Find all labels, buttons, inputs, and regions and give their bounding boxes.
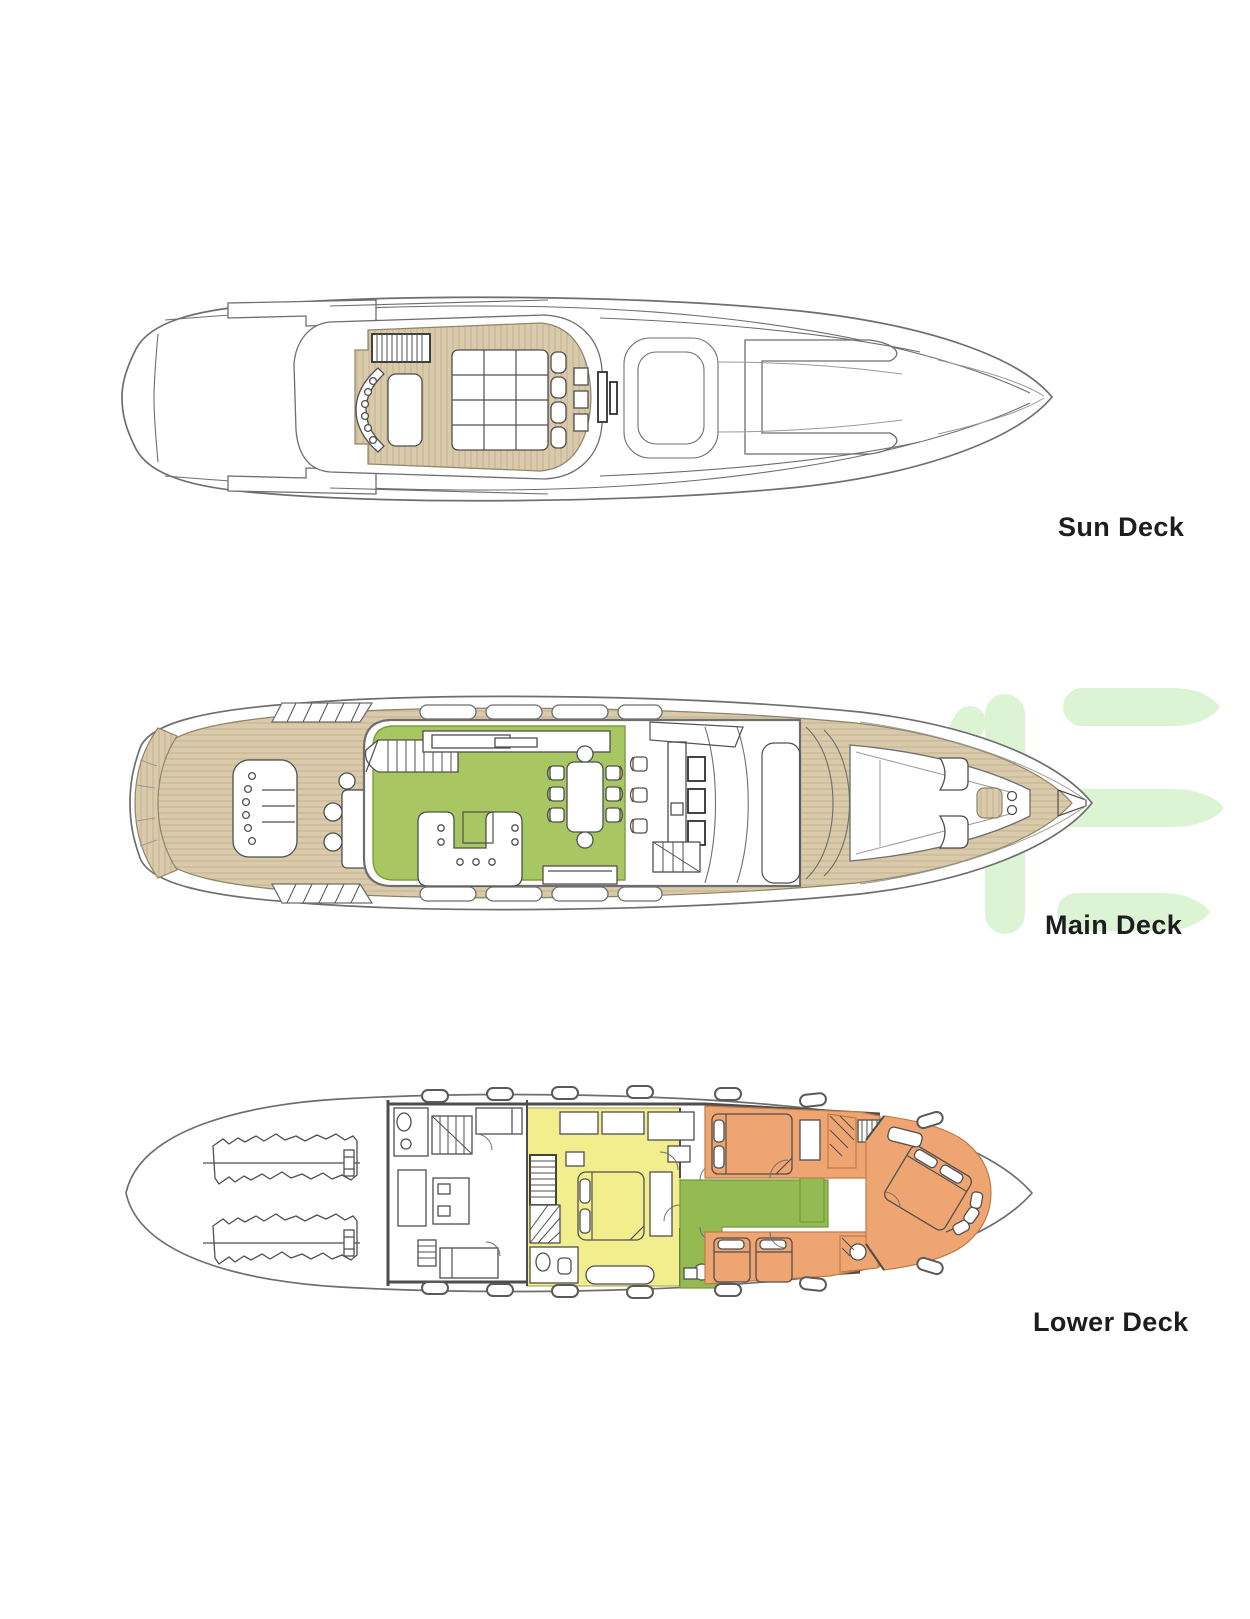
lounge-table [388, 374, 422, 446]
master-cabin [527, 1100, 694, 1286]
mast-support [610, 382, 617, 414]
crew-stairs-up [432, 1116, 472, 1154]
sun-deck-lounge [294, 300, 617, 494]
master-bathtub [586, 1266, 654, 1284]
sun-deck-plan [122, 297, 1052, 500]
master-bathroom [530, 1247, 578, 1283]
sun-deck-label: Sun Deck [1058, 512, 1184, 543]
main-deck-plan [130, 696, 1092, 909]
salon [366, 726, 626, 886]
yacht-deck-plan-page: Sun Deck Main Deck Lower Deck [0, 0, 1250, 1619]
vip-cabin [866, 1116, 991, 1270]
master-wardrobe [530, 1155, 556, 1205]
salon-bench [543, 866, 617, 884]
lower-deck-label: Lower Deck [1033, 1307, 1189, 1338]
guest-bed-double [712, 1114, 792, 1174]
stern-seating [233, 760, 297, 857]
master-shower [530, 1205, 560, 1243]
crew-stairs-down [418, 1240, 436, 1266]
bow-sunpad [977, 788, 1002, 818]
mast [598, 372, 607, 422]
yacht-deck-plans [0, 0, 1250, 1619]
master-bed [578, 1172, 644, 1240]
guest-cabin-forward-starboard [705, 1232, 880, 1284]
lower-deck-plan [126, 1086, 1032, 1298]
galley-stairs [653, 842, 700, 872]
roof-hatch [372, 334, 430, 362]
master-dresser [650, 1172, 672, 1236]
side-steps [574, 368, 588, 431]
main-deck-label: Main Deck [1045, 910, 1182, 941]
